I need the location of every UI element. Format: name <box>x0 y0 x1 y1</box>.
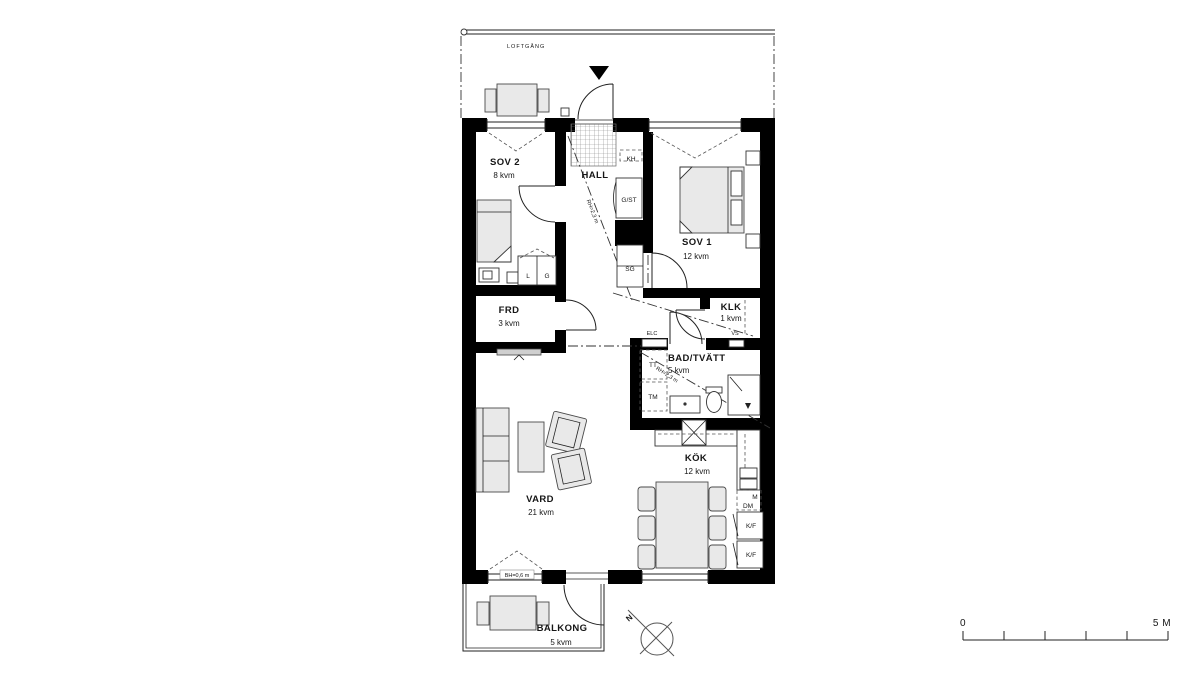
nightstand-lamp <box>483 271 492 279</box>
sov2-door <box>519 186 555 222</box>
vard-furniture <box>476 349 592 492</box>
loftgang-walkway: LOFTGÅNG <box>461 29 775 118</box>
entrance-marker-icon <box>589 66 609 80</box>
balkong-label: BALKONG <box>537 623 588 634</box>
sill-height-note: BH=0,6 m <box>505 573 530 579</box>
outdoor-table <box>497 84 537 116</box>
armchair <box>551 448 592 490</box>
dining-table <box>656 482 708 568</box>
pillow <box>731 200 742 225</box>
nightstand <box>746 151 760 165</box>
hall-label: HALL <box>582 170 609 181</box>
sink <box>740 479 757 489</box>
pillow <box>731 171 742 196</box>
dining-chair <box>709 516 726 540</box>
gst-label: G/ST <box>621 197 636 204</box>
bad-label: BAD/TVÄTT <box>668 353 725 364</box>
walkway-furniture <box>485 84 549 116</box>
sink <box>740 468 757 478</box>
outdoor-chair <box>538 89 549 112</box>
balcony-table <box>490 596 536 630</box>
dining-chair <box>638 516 655 540</box>
bath-fixtures <box>640 339 760 415</box>
vard-label: VARD <box>526 494 554 505</box>
sov1-label: SOV 1 <box>682 237 712 248</box>
stool <box>507 272 518 283</box>
dm-label: DM <box>743 503 753 510</box>
walkway-label: LOFTGÅNG <box>507 43 545 50</box>
sov1-door <box>652 253 687 288</box>
kh-label: KH <box>626 156 635 163</box>
vard-area: 21 kvm <box>528 508 554 517</box>
sov2-area: 8 kvm <box>493 171 515 180</box>
armchair <box>545 411 587 454</box>
g-label: G <box>544 273 549 280</box>
dining-chair <box>638 487 655 511</box>
sov1-area: 12 kvm <box>683 252 709 261</box>
klk-label: KLK <box>721 302 742 313</box>
bath-door <box>670 312 702 344</box>
entrance-door <box>578 84 613 119</box>
balcony-door <box>564 585 604 625</box>
tm-label: TM <box>648 394 657 401</box>
balcony-chair <box>477 602 489 625</box>
kf-bottom-label: K/F <box>746 552 756 559</box>
entry-fixture <box>561 108 569 116</box>
kitchen-fixtures <box>638 420 763 569</box>
dining-chair <box>709 487 726 511</box>
balcony <box>463 584 604 651</box>
kok-label: KÖK <box>685 453 707 464</box>
balkong-area: 5 kvm <box>550 638 572 647</box>
north-label: N <box>624 613 634 624</box>
faucet <box>683 402 686 405</box>
sov2-label: SOV 2 <box>490 157 520 168</box>
scale-end-label: 5 M <box>1153 618 1171 629</box>
scale-start-label: 0 <box>960 618 966 629</box>
tv <box>497 349 541 355</box>
north-compass-icon: N <box>624 610 674 656</box>
shower <box>728 375 760 415</box>
m-label: M <box>752 494 757 501</box>
sofa <box>476 408 509 492</box>
toilet <box>707 392 722 413</box>
doormat <box>571 124 616 166</box>
nightstand <box>746 234 760 248</box>
electrical-box <box>642 339 667 347</box>
sg-label: SG <box>625 266 634 273</box>
l-label: L <box>526 273 530 280</box>
floor-plan-page: LOFTGÅNG <box>0 0 1200 675</box>
railing-end-marker <box>461 29 467 35</box>
dining-chair <box>638 545 655 569</box>
outdoor-chair <box>485 89 496 112</box>
scale-bar: 0 5 M <box>960 618 1171 640</box>
coffee-table <box>518 422 544 472</box>
frd-label: FRD <box>499 305 520 316</box>
water-shutoff-box <box>729 340 744 347</box>
floor-plan-drawing: LOFTGÅNG <box>0 0 1200 675</box>
kf-top-label: K/F <box>746 523 756 530</box>
elc-label: ELC <box>647 331 658 337</box>
frd-area: 3 kvm <box>498 319 520 328</box>
frd-door <box>566 300 596 330</box>
dining-chair <box>709 545 726 569</box>
balcony-chair <box>537 602 549 625</box>
sov1-furniture <box>680 151 760 248</box>
kok-area: 12 kvm <box>684 467 710 476</box>
klk-area: 1 kvm <box>720 314 742 323</box>
vs-label: VS <box>731 331 739 337</box>
